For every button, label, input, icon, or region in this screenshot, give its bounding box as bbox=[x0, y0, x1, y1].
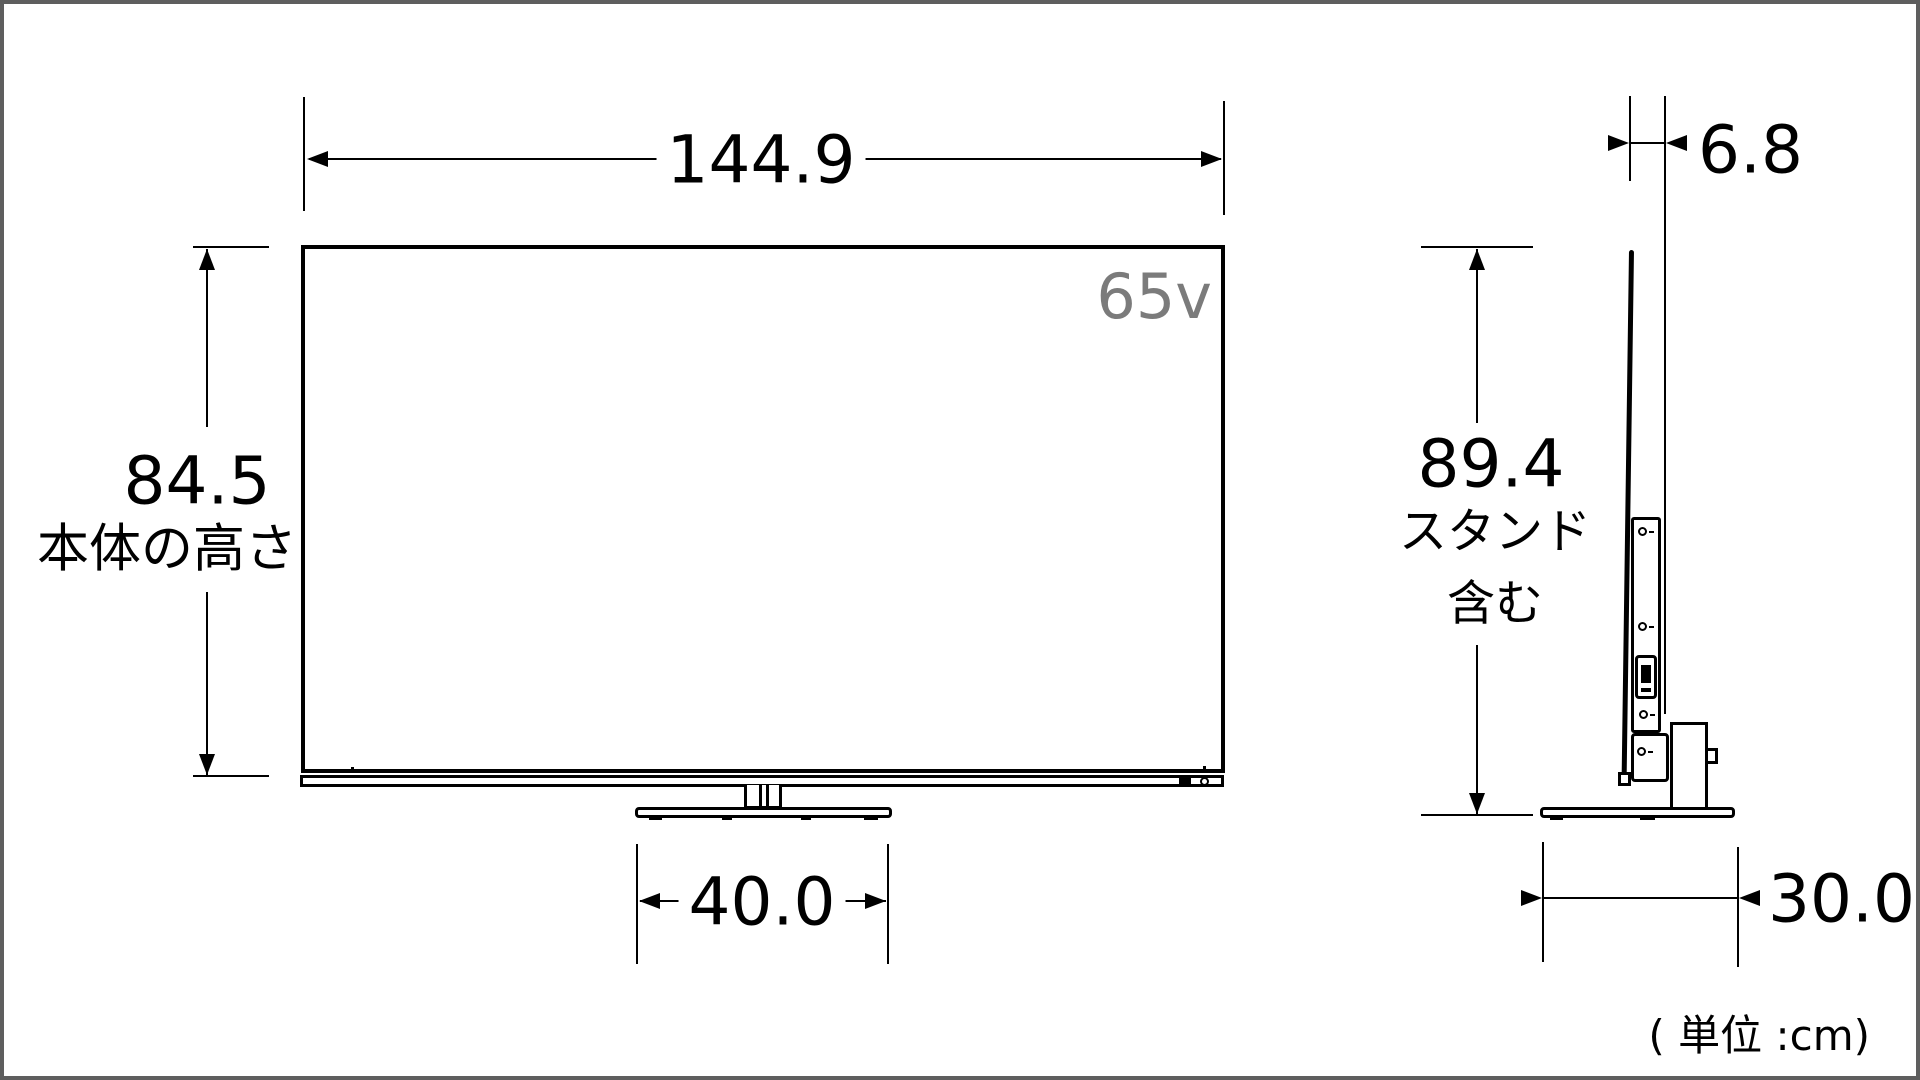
stand-width-value: 40.0 bbox=[679, 867, 846, 936]
screen-size-label: 65v bbox=[1082, 266, 1212, 328]
height-dim-line-upper bbox=[206, 249, 208, 427]
base-depth-arrow-right bbox=[1739, 890, 1760, 906]
depth-dim-arrow-left bbox=[1608, 135, 1629, 151]
height-dim-tick-bottom bbox=[193, 775, 269, 777]
total-height-value: 89.4 bbox=[1408, 429, 1575, 498]
height-dim-line-lower bbox=[206, 592, 208, 776]
total-height-arrow-up bbox=[1469, 249, 1485, 270]
depth-dim-line bbox=[1631, 142, 1664, 144]
screw-dash-3 bbox=[1650, 714, 1655, 716]
height-dim-caption: 本体の高さ bbox=[33, 521, 301, 578]
screw-mark-1 bbox=[1638, 527, 1647, 536]
bezel-dot-left bbox=[351, 767, 354, 770]
base-foot-side-2 bbox=[1640, 817, 1655, 820]
screw-dash-4 bbox=[1648, 751, 1653, 753]
ir-sensor-mark bbox=[1179, 778, 1191, 784]
stand-column-side bbox=[1670, 722, 1708, 810]
screw-mark-2 bbox=[1638, 622, 1647, 631]
stand-neck-line-2 bbox=[766, 785, 769, 808]
stand-column-tab bbox=[1705, 748, 1718, 764]
power-led-mark bbox=[1200, 777, 1209, 786]
total-height-caption-2: 含む bbox=[1443, 578, 1547, 631]
panel-foot-block bbox=[1618, 772, 1631, 786]
base-depth-extension-right bbox=[1737, 847, 1739, 967]
width-dim-arrow-right bbox=[1201, 151, 1222, 167]
width-dim-extension-right bbox=[1223, 101, 1225, 215]
screw-mark-3 bbox=[1639, 710, 1648, 719]
stand-width-extension-right bbox=[887, 844, 889, 964]
total-height-caption-1: スタンド bbox=[1395, 506, 1595, 559]
total-height-line-upper bbox=[1476, 249, 1478, 423]
stand-base-front bbox=[635, 807, 892, 818]
base-foot-side-1 bbox=[1550, 817, 1563, 820]
lower-housing-box bbox=[1631, 733, 1669, 782]
total-height-arrow-down bbox=[1469, 793, 1485, 814]
depth-dim-value: 6.8 bbox=[1692, 115, 1803, 184]
tv-dimension-diagram: 65v 144.9 84.5 本体の高さ 40.0 bbox=[0, 0, 1920, 1080]
base-depth-arrow-left bbox=[1521, 890, 1542, 906]
stand-neck-line-1 bbox=[759, 785, 762, 808]
width-dim-value: 144.9 bbox=[657, 125, 866, 194]
bezel-dot-right bbox=[1203, 766, 1206, 769]
depth-dim-arrow-right bbox=[1666, 135, 1687, 151]
width-dim-extension-left bbox=[303, 97, 305, 211]
base-depth-value: 30.0 bbox=[1762, 864, 1915, 933]
base-foot-front-1 bbox=[649, 817, 662, 820]
total-height-line-lower bbox=[1476, 645, 1478, 814]
connector-slot bbox=[1641, 688, 1651, 692]
stand-width-arrow-left bbox=[639, 893, 660, 909]
unit-note: ( 単位 :cm) bbox=[1504, 1015, 1870, 1057]
height-dim-value: 84.5 bbox=[114, 446, 281, 515]
connector-plug bbox=[1641, 665, 1651, 683]
base-depth-dim-line bbox=[1544, 897, 1737, 899]
total-height-tick-top bbox=[1421, 246, 1533, 248]
stand-width-extension-left bbox=[636, 844, 638, 964]
base-foot-front-2 bbox=[722, 817, 732, 820]
screw-dash-2 bbox=[1649, 626, 1654, 628]
base-depth-extension-left bbox=[1542, 842, 1544, 962]
stand-neck-front bbox=[744, 785, 782, 809]
screw-dash-1 bbox=[1649, 531, 1654, 533]
depth-dim-extension-front bbox=[1629, 96, 1631, 181]
stand-base-side bbox=[1540, 807, 1735, 818]
width-dim-arrow-left bbox=[307, 151, 328, 167]
stand-width-arrow-right bbox=[865, 893, 886, 909]
height-dim-arrow-down bbox=[199, 754, 215, 775]
base-foot-front-3 bbox=[801, 817, 811, 820]
height-dim-tick-top bbox=[193, 246, 269, 248]
height-dim-arrow-up bbox=[199, 249, 215, 270]
screw-mark-4 bbox=[1637, 747, 1646, 756]
depth-dim-extension-back bbox=[1664, 96, 1666, 714]
base-foot-front-4 bbox=[864, 817, 878, 820]
total-height-tick-bottom bbox=[1421, 814, 1533, 816]
